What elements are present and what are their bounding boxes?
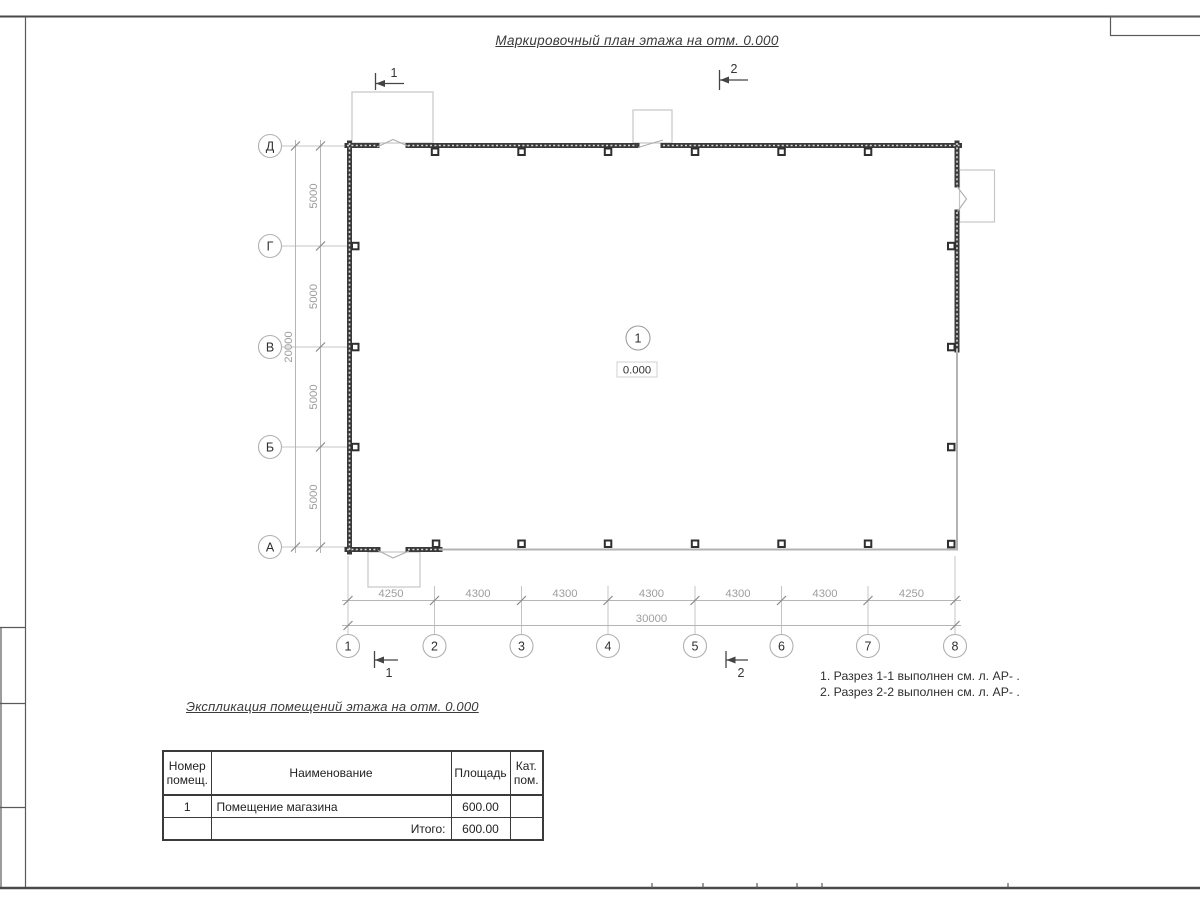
svg-text:2: 2	[731, 62, 738, 76]
axis-label-4: 4	[605, 640, 612, 654]
total-area-cell: 600.00	[451, 818, 510, 841]
total-label-cell: Итого:	[211, 818, 451, 841]
axis-label-g: Г	[267, 240, 274, 254]
doors	[377, 140, 967, 559]
spec-header-row: Номер помещ. Наименование Площадь Кат. п…	[163, 751, 543, 795]
axis-label-3: 3	[518, 640, 525, 654]
svg-text:2: 2	[738, 666, 745, 680]
dim-20000-total: 20000	[283, 331, 295, 362]
axis-label-8: 8	[952, 640, 959, 654]
specification-title: Экспликация помещений этажа на отм. 0.00…	[186, 699, 479, 714]
axis-label-a: А	[266, 541, 275, 555]
total-empty-cell	[163, 818, 211, 841]
porch-top-left	[352, 92, 433, 143]
room-number-cell: 1	[163, 795, 211, 818]
page-title: Маркировочный план этажа на отм. 0.000	[495, 33, 778, 48]
room-name-cell: Помещение магазина	[211, 795, 451, 818]
svg-text:1: 1	[391, 66, 398, 80]
bottom-dimensions: 4250 4300 4300 4300 4300 4300 4250 30000	[342, 556, 961, 635]
axis-label-7: 7	[865, 640, 872, 654]
col-header-cat: Кат. пом.	[510, 751, 543, 795]
col-header-area: Площадь	[451, 751, 510, 795]
room-marker: 1 0.000	[617, 326, 657, 377]
dim-4300-5: 4300	[812, 588, 837, 600]
section-notes: 1. Разрез 1-1 выполнен см. л. АР- . 2. Р…	[820, 669, 1020, 700]
walls	[347, 143, 960, 552]
room-specification-table: Номер помещ. Наименование Площадь Кат. п…	[162, 750, 544, 841]
svg-text:1: 1	[386, 666, 393, 680]
dim-4300-4: 4300	[725, 588, 750, 600]
porch-top-center	[633, 110, 672, 143]
section-1-bottom: 1	[375, 651, 399, 680]
section-2-bottom: 2	[726, 651, 748, 680]
section-1-top: 1	[376, 66, 405, 90]
door-right	[957, 187, 967, 212]
axis-label-v: В	[266, 341, 274, 355]
room-elevation: 0.000	[623, 365, 651, 377]
axis-label-2: 2	[431, 640, 438, 654]
spec-row-1: 1 Помещение магазина 600.00	[163, 795, 543, 818]
dim-4250-right: 4250	[899, 588, 924, 600]
left-dimensions: 5000 5000 5000 5000 20000	[282, 140, 352, 553]
col-header-number: Номер помещ.	[163, 751, 211, 795]
dim-5000-1: 5000	[308, 183, 320, 208]
axis-label-1: 1	[345, 640, 352, 654]
col-header-name: Наименование	[211, 751, 451, 795]
dim-4300-3: 4300	[639, 588, 664, 600]
dim-4250-left: 4250	[378, 588, 403, 600]
axis-bubbles-bottom: 1 2 3 4 5 6 7 8	[337, 635, 967, 658]
spec-total-row: Итого: 600.00	[163, 818, 543, 841]
dim-5000-4: 5000	[308, 484, 320, 509]
column-markers	[352, 149, 955, 548]
dim-30000-total: 30000	[636, 613, 667, 625]
dim-4300-2: 4300	[552, 588, 577, 600]
axis-label-5: 5	[692, 640, 699, 654]
room-number: 1	[635, 332, 642, 346]
section-2-top: 2	[720, 62, 749, 90]
door-top-center	[638, 140, 663, 148]
axis-label-d: Д	[266, 140, 275, 154]
entrance-porches	[352, 92, 995, 587]
dim-4300-1: 4300	[465, 588, 490, 600]
axis-label-6: 6	[778, 640, 785, 654]
dim-5000-2: 5000	[308, 284, 320, 309]
axis-bubbles-left: Д Г В Б А	[259, 135, 282, 559]
note-line-1: 1. Разрез 1-1 выполнен см. л. АР- .	[820, 669, 1020, 685]
room-cat-cell	[510, 795, 543, 818]
total-cat-cell	[510, 818, 543, 841]
frame-corner-box	[1111, 17, 1200, 36]
axis-label-b: Б	[266, 441, 274, 455]
note-line-2: 2. Разрез 2-2 выполнен см. л. АР- .	[820, 685, 1020, 701]
drawing-sheet: 5000 5000 5000 5000 20000 4250 4300	[0, 0, 1200, 900]
dim-5000-3: 5000	[308, 384, 320, 409]
room-area-cell: 600.00	[451, 795, 510, 818]
